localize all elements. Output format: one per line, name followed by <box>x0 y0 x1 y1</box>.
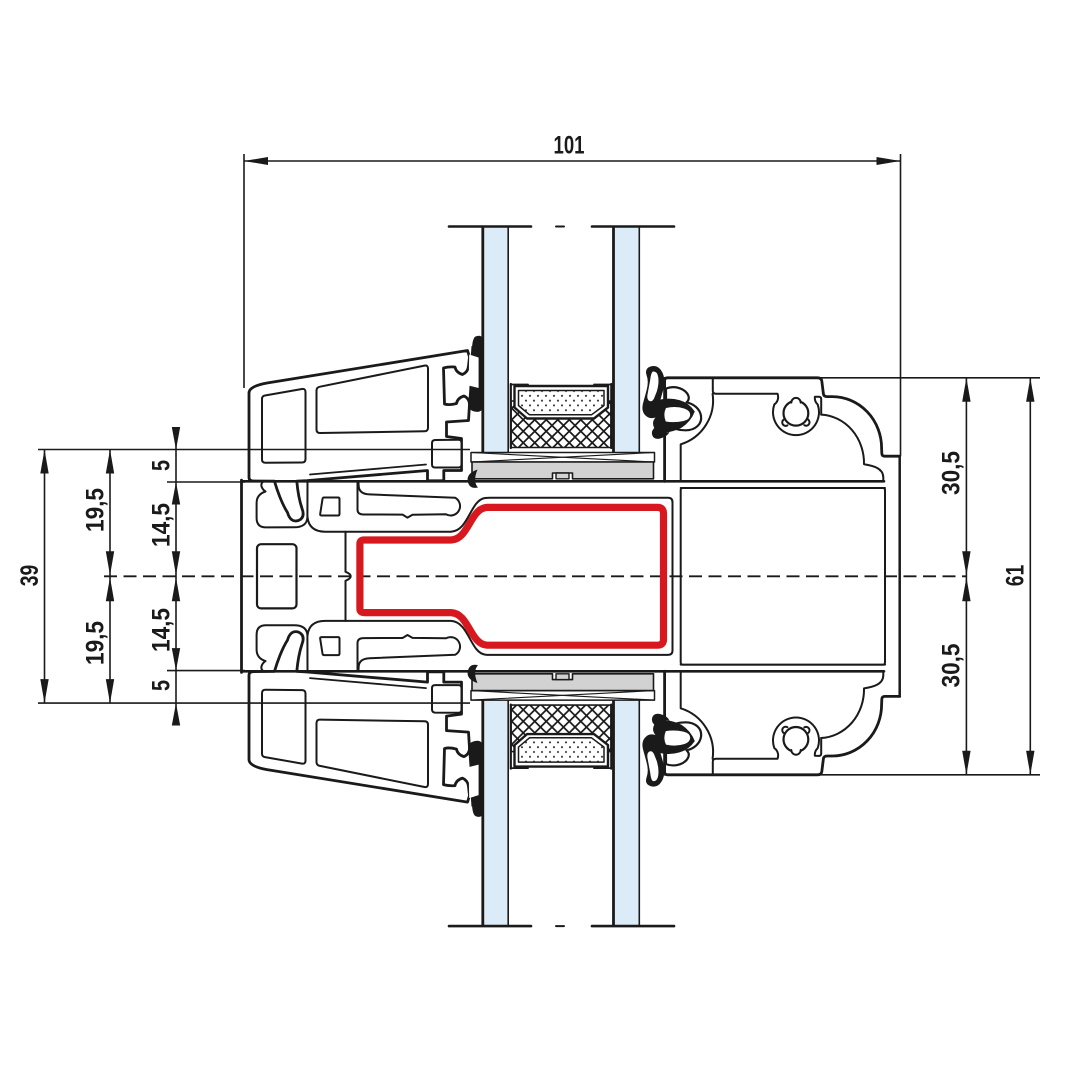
svg-text:30,5: 30,5 <box>938 643 966 687</box>
svg-text:14,5: 14,5 <box>148 503 176 547</box>
svg-text:5: 5 <box>148 680 176 691</box>
svg-text:30,5: 30,5 <box>938 451 966 495</box>
svg-text:5: 5 <box>148 460 176 471</box>
svg-text:14,5: 14,5 <box>148 608 176 652</box>
svg-text:19,5: 19,5 <box>82 621 110 665</box>
svg-text:19,5: 19,5 <box>82 488 110 532</box>
svg-text:61: 61 <box>1002 565 1030 587</box>
svg-text:39: 39 <box>16 565 44 587</box>
svg-text:101: 101 <box>554 132 585 160</box>
